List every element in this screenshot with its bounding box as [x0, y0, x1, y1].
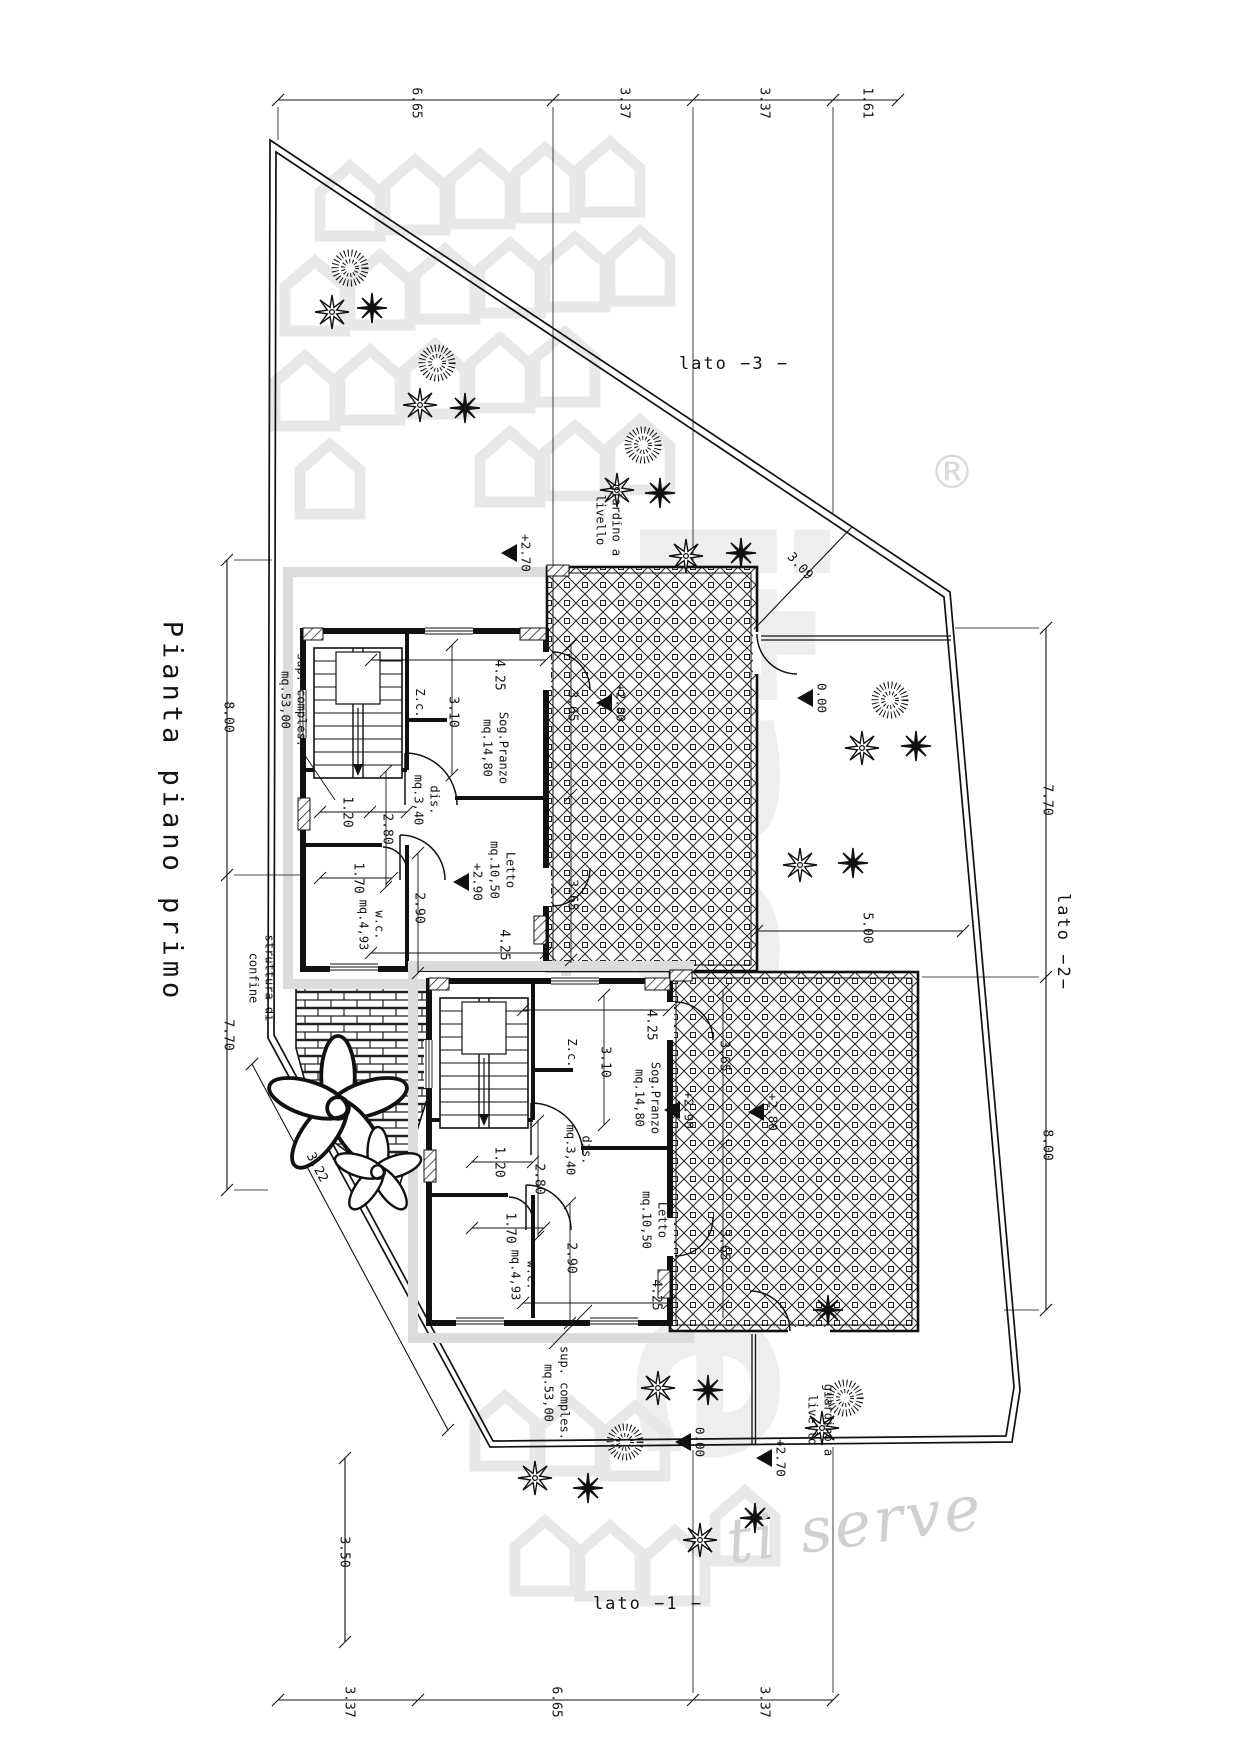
- unit-a: [288, 565, 797, 984]
- flower-plant-icon: [641, 1371, 675, 1405]
- flower-plant-icon: [669, 539, 703, 573]
- floor-plan-sheet: itacase: [0, 0, 1240, 1755]
- plan-drawing: itacase: [0, 0, 1240, 1755]
- bush-plant-icon: [875, 685, 905, 715]
- star-plant-icon: [357, 293, 387, 323]
- flower-plant-icon: [783, 848, 817, 882]
- flower-plant-icon: [403, 388, 437, 422]
- flower-plant-icon: [315, 295, 349, 329]
- flower-plant-icon: [518, 1461, 552, 1495]
- flower-plant-icon: [805, 1411, 839, 1445]
- unit-b: [413, 966, 918, 1338]
- flower-plant-icon: [600, 473, 634, 507]
- flower-plant-icon: [683, 1523, 717, 1557]
- unit-b-terrace: [670, 972, 918, 1331]
- unit-a-terrace: [547, 567, 757, 971]
- star-plant-icon: [573, 1473, 603, 1503]
- flower-plant-icon: [845, 731, 879, 765]
- stairs-b: [440, 998, 528, 1128]
- star-plant-icon: [901, 731, 931, 761]
- stairs-a: [314, 648, 402, 778]
